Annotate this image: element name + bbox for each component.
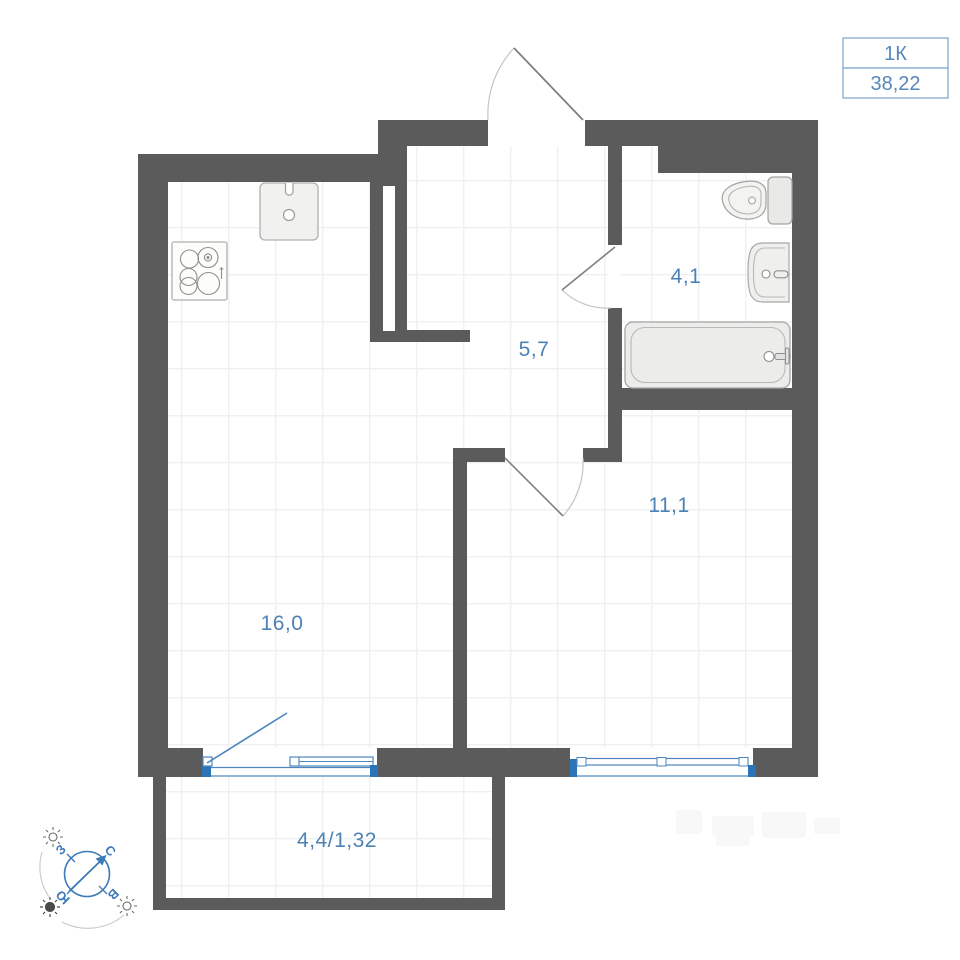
floor-entry-threshold [488, 120, 585, 146]
wall-left [138, 154, 168, 777]
floor-plan: 16,0 5,7 4,1 11,1 4,4/1,32 1К 38,22 С В … [0, 0, 960, 960]
wall-bottom-stub-left [168, 748, 203, 777]
wall-balcony-left [153, 777, 166, 910]
label-kitchen-living: 16,0 [261, 612, 304, 635]
wall-top-left-segment [378, 120, 488, 146]
floor-plan-canvas: 16,0 5,7 4,1 11,1 4,4/1,32 1К 38,22 С В … [0, 0, 960, 960]
wall-kitchen-partition-bottom [370, 330, 470, 342]
badge-area-text: 38,22 [870, 73, 920, 95]
entry-door-leaf [514, 48, 583, 120]
sun-icon-southwest [40, 897, 60, 917]
entry-door [488, 48, 583, 120]
living-room-window [570, 758, 756, 778]
wall-balcony-bottom [153, 898, 505, 910]
compass-west: З [52, 841, 68, 857]
wall-bathroom-bottom [618, 388, 792, 410]
compass-east: В [105, 886, 122, 903]
wall-shaft-slot [383, 186, 395, 331]
bathroom-sink [748, 243, 789, 302]
kitchen-sink [260, 183, 318, 240]
wall-bathroom-top-inset [658, 143, 792, 173]
wall-right [792, 120, 818, 777]
badge-type-text: 1К [884, 43, 907, 65]
bathtub [625, 322, 790, 388]
bathroom-sink-faucet [774, 271, 788, 278]
wall-balcony-right [492, 777, 505, 910]
wall-room-left [453, 448, 467, 748]
wall-kitchen-top [138, 154, 407, 182]
kitchen-sink-faucet [286, 183, 294, 195]
wall-room-stub-right [583, 448, 622, 462]
stove-icon [172, 242, 227, 300]
sun-icon-southeast [117, 896, 137, 916]
label-balcony: 4,4/1,32 [297, 829, 377, 852]
label-room: 11,1 [648, 494, 689, 517]
compass-arc-bottom [62, 915, 124, 928]
wall-hall-bath-lower [608, 308, 622, 462]
wall-top-right-segment [585, 120, 818, 146]
compass: С В Ю З [40, 827, 137, 928]
area-badge: 1К 38,22 [843, 38, 948, 98]
wall-hall-bath-upper [608, 145, 622, 245]
watermark [676, 810, 840, 846]
compass-arc-left [40, 852, 49, 897]
floor-room [467, 410, 792, 748]
wall-bottom-middle [377, 748, 570, 777]
wall-bottom-right-corner [753, 748, 818, 777]
sun-icon-northwest [43, 827, 63, 847]
label-hallway: 5,7 [519, 338, 550, 361]
label-bathroom: 4,1 [671, 265, 702, 288]
